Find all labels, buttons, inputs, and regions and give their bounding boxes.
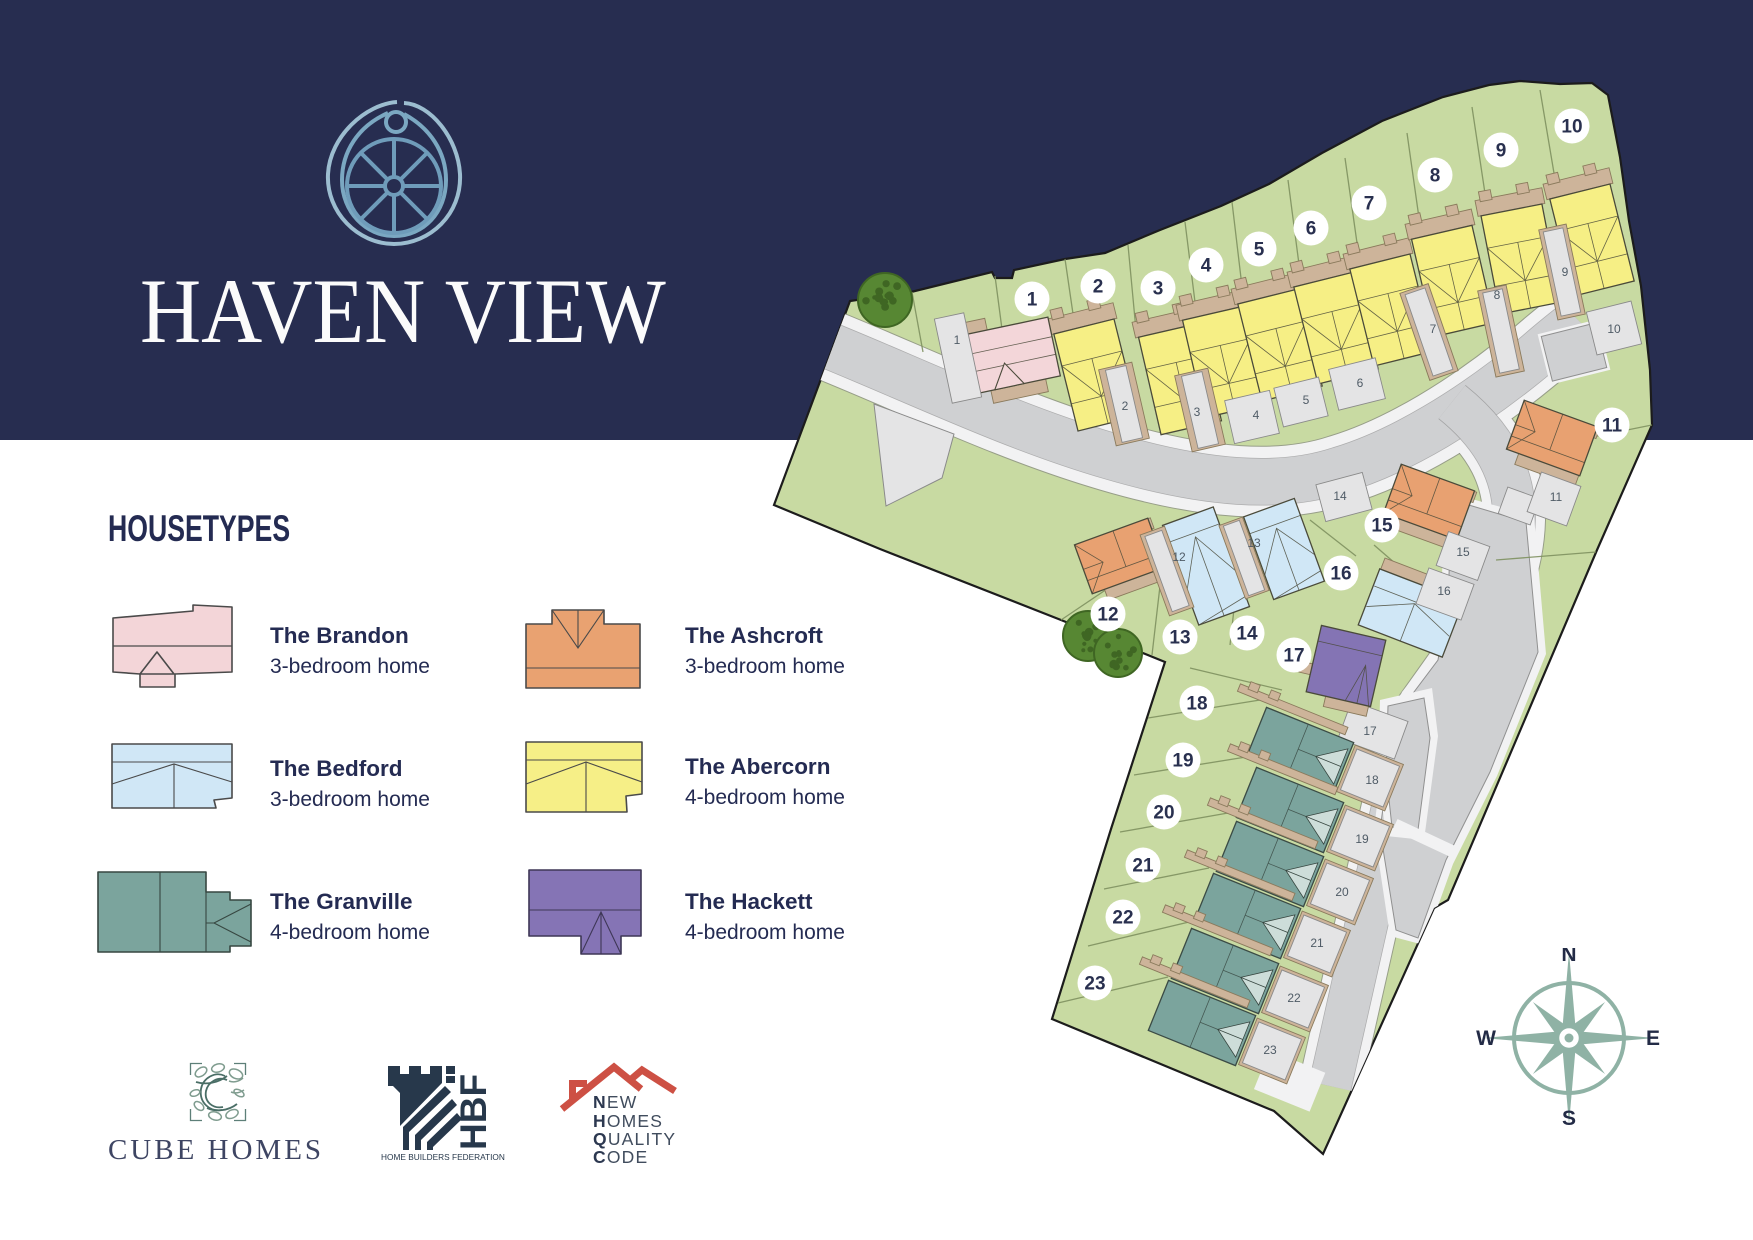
svg-text:2: 2 <box>1122 399 1129 413</box>
svg-text:10: 10 <box>1607 322 1621 336</box>
svg-text:6: 6 <box>1306 219 1317 240</box>
svg-text:10: 10 <box>1561 117 1582 138</box>
svg-text:3: 3 <box>1153 279 1164 300</box>
svg-text:21: 21 <box>1310 936 1324 950</box>
svg-text:5: 5 <box>1254 240 1265 261</box>
svg-text:6: 6 <box>1357 376 1364 390</box>
svg-text:17: 17 <box>1363 724 1377 738</box>
svg-text:13: 13 <box>1169 628 1190 649</box>
svg-text:22: 22 <box>1112 908 1133 929</box>
svg-text:9: 9 <box>1496 141 1507 162</box>
svg-text:14: 14 <box>1333 489 1347 503</box>
svg-text:23: 23 <box>1263 1043 1277 1057</box>
svg-text:2: 2 <box>1093 277 1104 298</box>
svg-text:18: 18 <box>1186 694 1207 715</box>
svg-text:11: 11 <box>1550 490 1563 504</box>
svg-text:23: 23 <box>1084 974 1105 995</box>
svg-text:22: 22 <box>1287 991 1301 1005</box>
svg-text:19: 19 <box>1172 751 1193 772</box>
svg-text:1: 1 <box>1027 290 1038 311</box>
svg-text:E: E <box>1646 1027 1660 1050</box>
svg-text:13: 13 <box>1247 536 1261 550</box>
svg-text:15: 15 <box>1371 516 1393 537</box>
svg-text:16: 16 <box>1330 564 1351 585</box>
svg-text:20: 20 <box>1335 885 1349 899</box>
svg-text:S: S <box>1562 1107 1576 1128</box>
svg-text:N: N <box>1561 948 1576 966</box>
svg-text:7: 7 <box>1364 194 1375 215</box>
svg-text:15: 15 <box>1456 545 1470 559</box>
svg-text:W: W <box>1476 1027 1496 1050</box>
svg-text:7: 7 <box>1430 322 1437 336</box>
svg-text:18: 18 <box>1365 773 1379 787</box>
svg-text:9: 9 <box>1562 265 1569 279</box>
svg-text:12: 12 <box>1097 605 1118 626</box>
svg-text:14: 14 <box>1236 624 1258 645</box>
svg-text:8: 8 <box>1494 288 1501 302</box>
svg-text:19: 19 <box>1355 832 1369 846</box>
svg-text:8: 8 <box>1430 166 1441 187</box>
svg-text:21: 21 <box>1132 856 1154 877</box>
svg-text:11: 11 <box>1602 416 1623 437</box>
svg-text:20: 20 <box>1153 803 1174 824</box>
svg-text:HBF: HBF <box>453 1074 494 1150</box>
svg-text:3: 3 <box>1194 405 1201 419</box>
svg-text:16: 16 <box>1437 584 1451 598</box>
svg-text:17: 17 <box>1283 646 1304 667</box>
svg-text:1: 1 <box>954 333 961 347</box>
svg-text:4: 4 <box>1201 256 1212 277</box>
svg-text:4: 4 <box>1253 408 1260 422</box>
svg-text:5: 5 <box>1303 393 1310 407</box>
svg-text:12: 12 <box>1172 550 1186 564</box>
